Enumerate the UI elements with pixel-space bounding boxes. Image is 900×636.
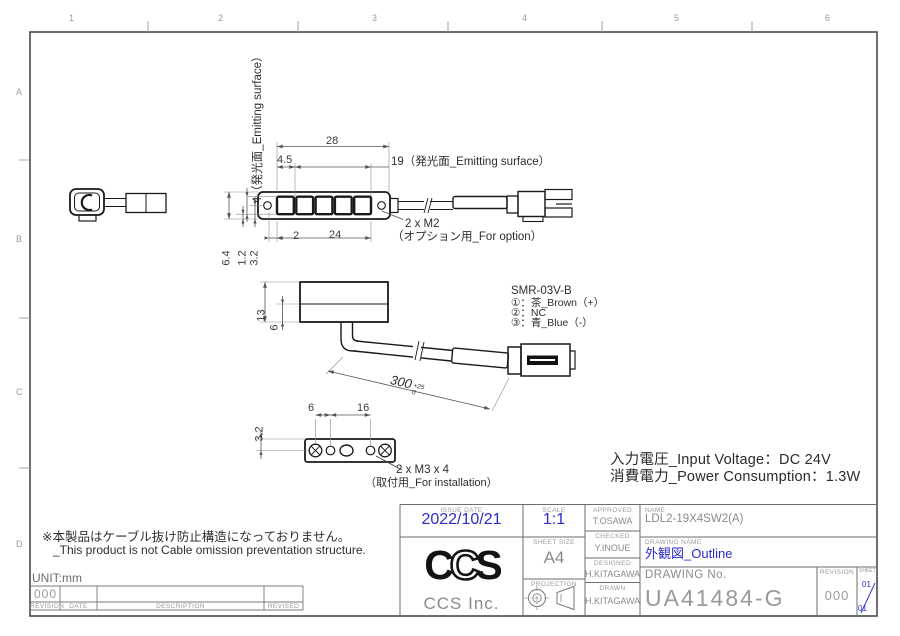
dim-6-bottom-label: 6 <box>308 402 314 415</box>
m3-note-sub: （取付用_For installation） <box>365 477 498 490</box>
dim-3-2-label: 3.2 <box>248 250 261 265</box>
designed-value: H.KITAGAWA <box>585 569 640 579</box>
dim-13-label: 13 <box>255 309 268 321</box>
checked-label: CHECKED <box>585 533 640 540</box>
product-name: LDL2-19X4SW2(A) <box>645 513 743 526</box>
m2-note-sub: （オプション用_For option） <box>392 231 542 244</box>
dim-2-label: 2 <box>293 230 299 243</box>
revised-header: REVISED <box>264 603 303 610</box>
zone-row-a: A <box>16 87 22 97</box>
end-view <box>70 189 166 221</box>
input-voltage: 入力電圧_Input Voltage：DC 24V <box>610 452 831 469</box>
zone-col-6: 6 <box>825 13 830 23</box>
logo-letter-3: S <box>475 542 498 588</box>
dim-3-2-bottom-label: 3.2 <box>253 426 266 441</box>
sheet-label: SHEET <box>859 569 876 575</box>
zone-col-4: 4 <box>522 13 527 23</box>
sheet-current: 01 <box>862 580 871 589</box>
power-consumption: 消費電力_Power Consumption：1.3W <box>610 469 860 486</box>
logo-letter-1: C <box>424 542 450 588</box>
dim-1-2-label: 1.2 <box>236 250 249 265</box>
drawing-no: UA41484-G <box>645 585 784 611</box>
zone-row-c: C <box>16 387 23 397</box>
zone-col-3: 3 <box>372 13 377 23</box>
unit-label: UNIT:mm <box>32 572 82 586</box>
date-header: DATE <box>60 603 97 610</box>
zone-col-5: 5 <box>674 13 679 23</box>
checked-value: Y.INOUE <box>585 543 640 553</box>
sheet-size-label: SHEET SIZE <box>523 539 585 546</box>
dim-4-5-label: 4.5 <box>277 154 292 167</box>
sheet-size-value: A4 <box>523 548 585 568</box>
top-view-body <box>258 190 572 222</box>
sheet-total: 01 <box>858 604 867 613</box>
approved-value: T.OSAWA <box>585 516 640 526</box>
zone-row-d: D <box>16 539 23 549</box>
zone-row-b: B <box>16 234 22 244</box>
projection-symbol <box>524 586 574 610</box>
zone-col-1: 1 <box>69 13 74 23</box>
connector-pin-3: ③：青_Blue（-） <box>511 317 593 329</box>
drawing-no-label: DRAWING No. <box>645 569 727 582</box>
scale-value: 1:1 <box>523 511 585 529</box>
m3-note: 2 x M3 x 4 <box>396 464 449 477</box>
dim-4-emitting-label: 4（発光面_Emitting surface） <box>252 50 265 203</box>
issue-date: 2022/10/21 <box>400 511 523 529</box>
dim-19-emitting-label: 19（発光面_Emitting surface） <box>391 156 550 169</box>
drawn-label: DRAWN <box>585 585 640 592</box>
dim-16-label: 16 <box>357 402 369 415</box>
revision-value: 000 <box>817 589 857 604</box>
current-revision: 000 <box>34 588 57 602</box>
drawing-sheet: 1 2 3 4 5 6 A B C D 28 4.5 19（発光面_Emitti… <box>0 0 900 636</box>
revision-label: REVISION <box>817 569 857 576</box>
description-header: DESCRIPTION <box>97 603 264 610</box>
designed-label: DESIGNED <box>585 560 640 567</box>
m2-note: 2 x M2 <box>405 218 440 231</box>
zone-col-2: 2 <box>218 13 223 23</box>
ccs-logo: CCS <box>400 545 523 586</box>
side-view-dimensions <box>260 282 509 411</box>
revision-header: REVISION <box>30 603 60 610</box>
projection-label: PROJECTION <box>523 581 585 588</box>
approved-label: APPROVED <box>585 507 640 514</box>
dim-24-label: 24 <box>329 229 341 242</box>
drawing-name: 外観図_Outline <box>645 547 732 562</box>
dim-6-label: 6 <box>268 325 281 331</box>
note-en: _This product is not Cable omission prev… <box>53 544 366 558</box>
dim-6-4-label: 6.4 <box>220 250 233 265</box>
dim-28-label: 28 <box>326 135 338 148</box>
drawn-value: H.KITAGAWA <box>585 596 640 606</box>
company-name: CCS Inc. <box>400 594 523 614</box>
logo-letter-2: C <box>450 542 476 588</box>
